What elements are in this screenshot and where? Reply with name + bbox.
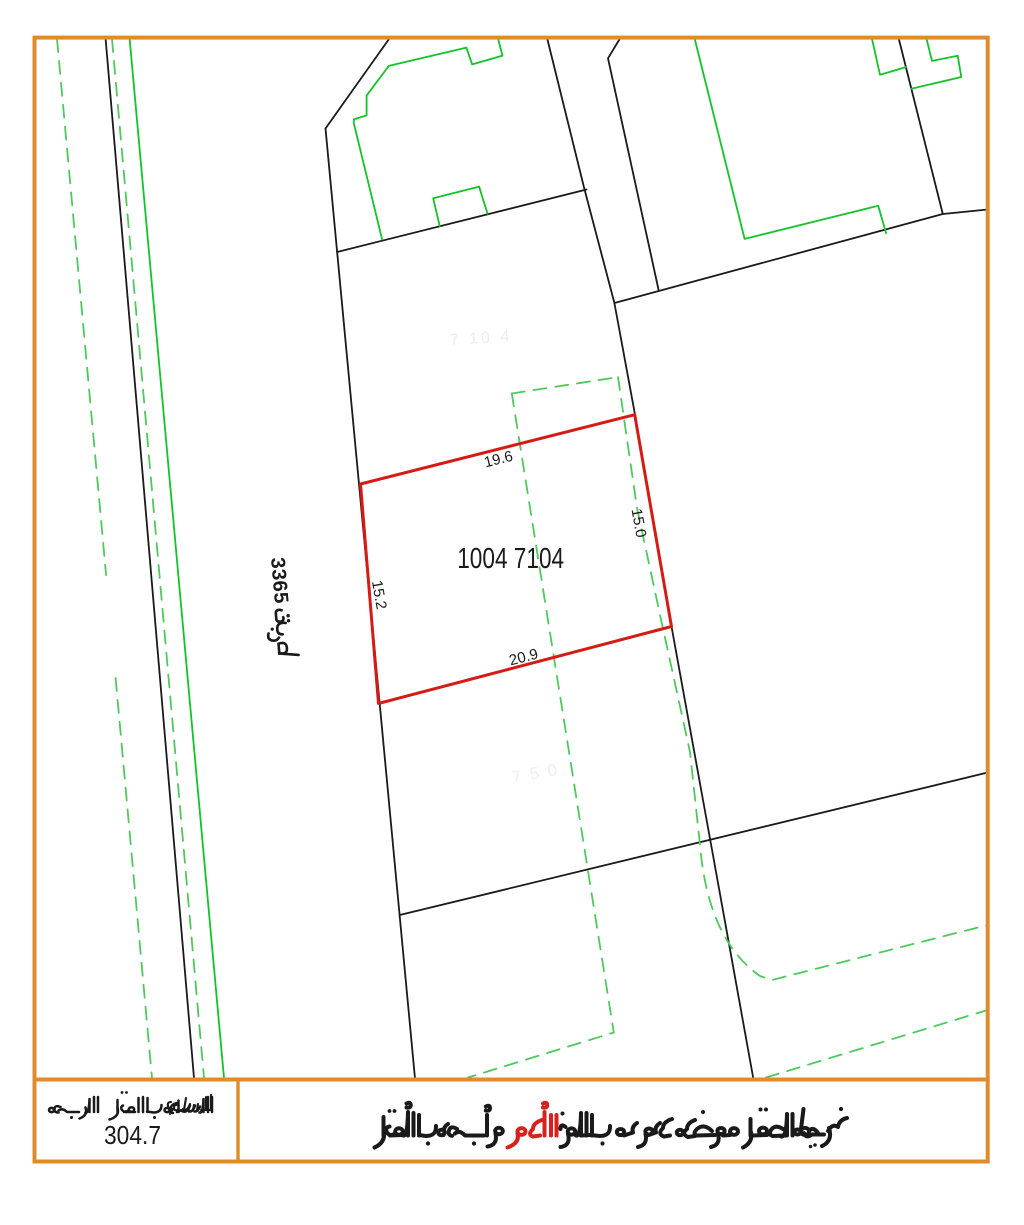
svg-text:1004 7104: 1004 7104 [457,541,564,574]
svg-text:3365: 3365 [266,557,292,605]
svg-text:304.7: 304.7 [104,1120,161,1150]
